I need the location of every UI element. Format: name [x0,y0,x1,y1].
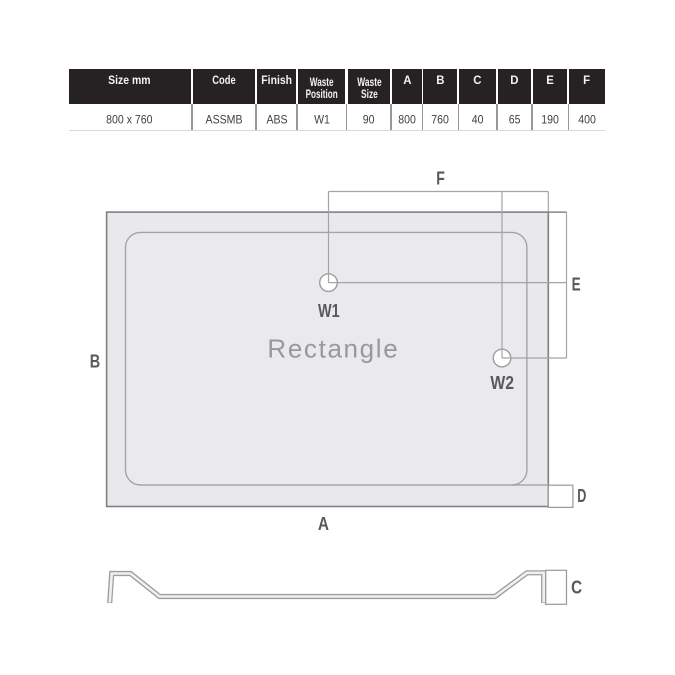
svg-text:Rectangle: Rectangle [267,334,399,364]
svg-text:E: E [572,274,581,295]
svg-text:B: B [90,351,100,372]
svg-text:A: A [318,513,329,534]
svg-text:W1: W1 [318,300,340,321]
svg-text:D: D [577,487,586,507]
svg-text:W2: W2 [490,372,514,394]
svg-text:F: F [436,169,445,189]
svg-text:C: C [571,577,582,598]
